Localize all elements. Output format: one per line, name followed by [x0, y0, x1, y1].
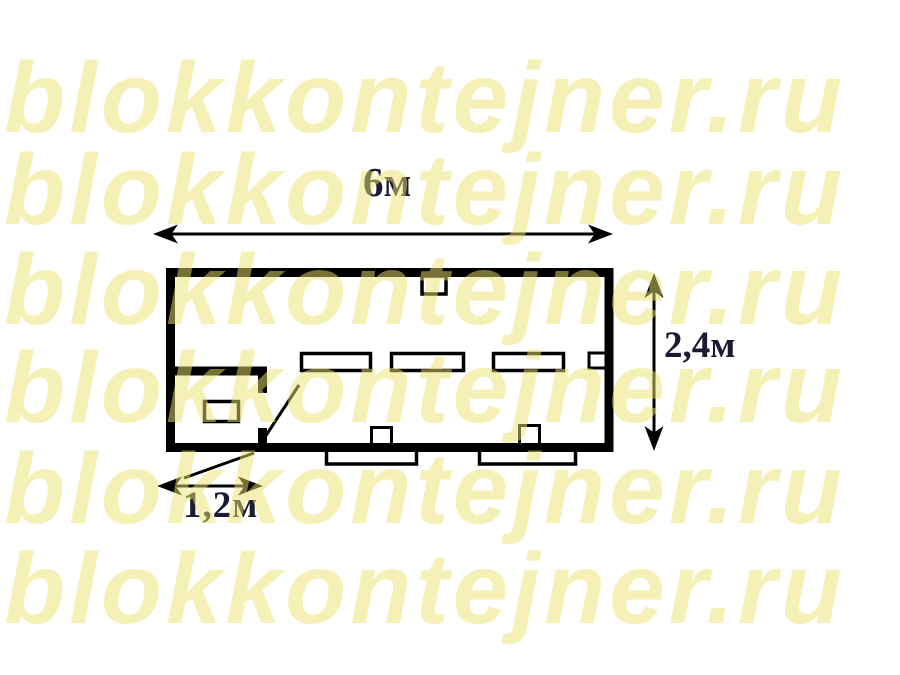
plan-rectangle-1 — [302, 354, 371, 371]
watermarked-floorplan-image: 6м 2,4м 1,2м blokkontejner.ru blokkontej… — [0, 0, 900, 675]
leader-line — [184, 453, 254, 478]
plan-rectangle-2 — [392, 354, 464, 371]
dim-label-width: 2,4м — [664, 327, 735, 364]
roof-vent-square — [422, 276, 446, 294]
side-wall-rectangle — [589, 353, 607, 368]
entry-square-2 — [520, 426, 540, 445]
room-window-rectangle — [205, 402, 239, 422]
dim-label-length: 6м — [363, 162, 411, 203]
entry-step-1 — [327, 450, 417, 464]
entry-square-1 — [372, 428, 392, 445]
dim-label-entry-width: 1,2м — [183, 487, 258, 524]
floorplan-drawing — [0, 0, 900, 675]
door-swing-line — [265, 385, 299, 437]
entry-step-2 — [480, 450, 576, 464]
plan-rectangle-3 — [494, 354, 564, 371]
